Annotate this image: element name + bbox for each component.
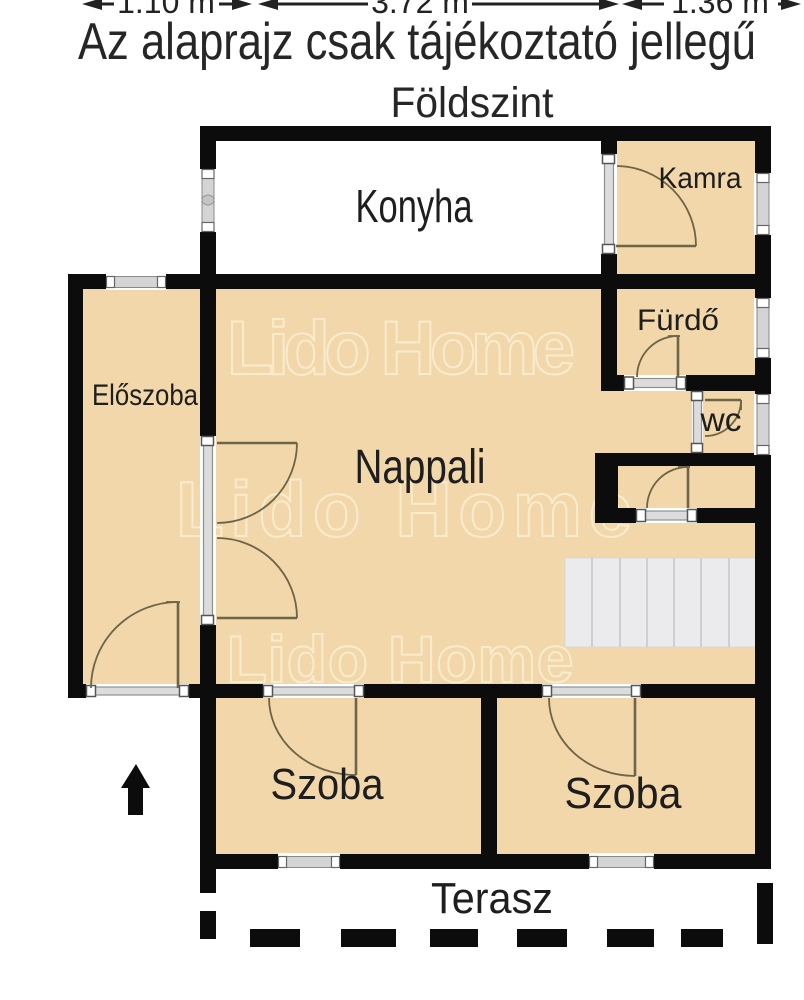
svg-text:Az alaprajz csak tájékoztató j: Az alaprajz csak tájékoztató jellegű bbox=[78, 13, 756, 71]
svg-text:Fürdő: Fürdő bbox=[637, 304, 719, 337]
svg-text:wc: wc bbox=[699, 401, 741, 438]
svg-text:Terasz: Terasz bbox=[431, 874, 553, 923]
svg-text:Előszoba: Előszoba bbox=[92, 379, 198, 412]
svg-text:Szoba: Szoba bbox=[565, 769, 682, 818]
svg-text:Szoba: Szoba bbox=[271, 760, 384, 809]
svg-text:Kamra: Kamra bbox=[659, 162, 742, 195]
svg-text:Konyha: Konyha bbox=[356, 180, 473, 232]
svg-text:Nappali: Nappali bbox=[355, 441, 486, 494]
svg-text:Földszint: Földszint bbox=[391, 79, 554, 127]
svg-text:Lido Home: Lido Home bbox=[227, 306, 575, 391]
